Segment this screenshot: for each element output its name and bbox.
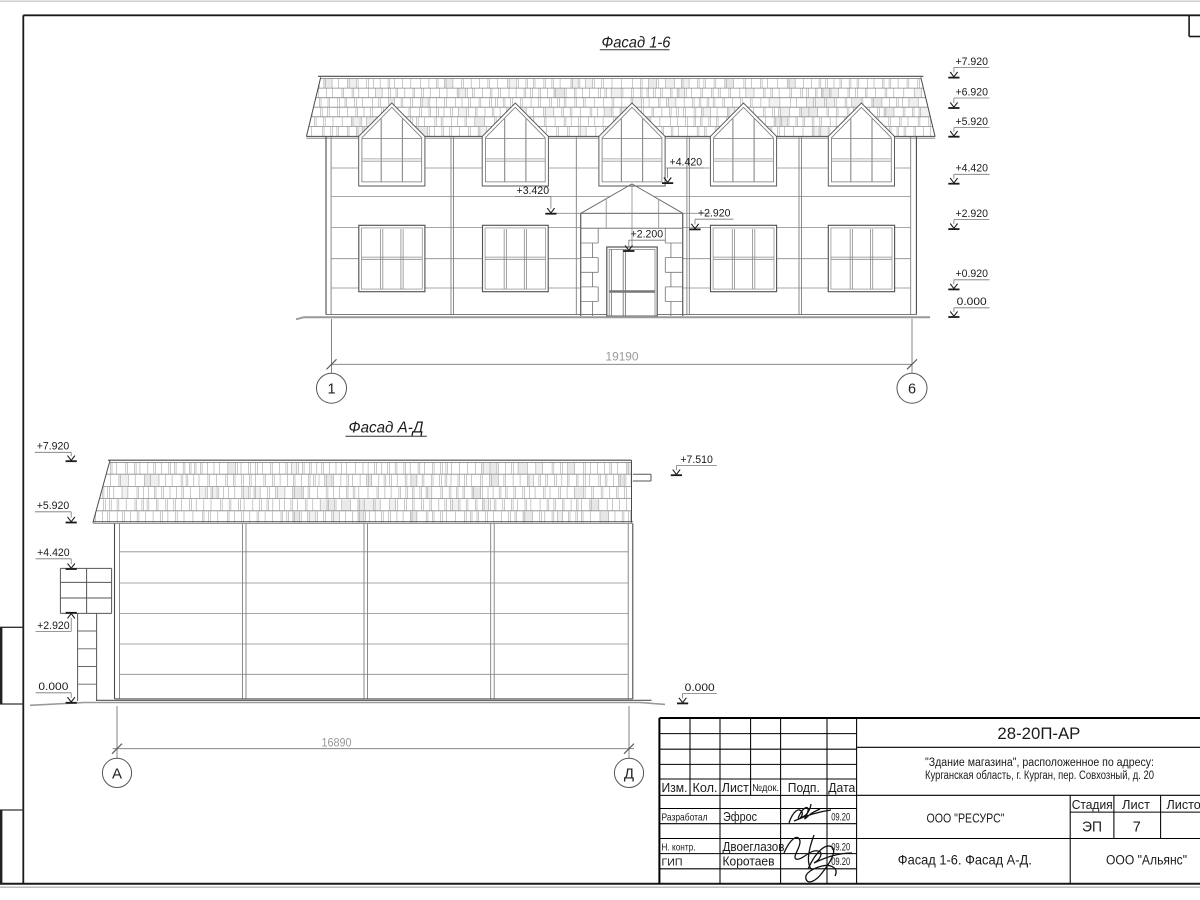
svg-text:Коротаев: Коротаев: [723, 854, 775, 869]
svg-text:Лист: Лист: [722, 780, 749, 795]
svg-text:Дата: Дата: [828, 780, 856, 795]
svg-text:0.000: 0.000: [38, 681, 68, 693]
svg-text:+2.920: +2.920: [698, 208, 731, 220]
svg-text:Эфрос: Эфрос: [723, 809, 758, 824]
svg-text:Фасад 1-6: Фасад 1-6: [602, 35, 671, 52]
svg-text:Фасад 1-6. Фасад А-Д.: Фасад 1-6. Фасад А-Д.: [898, 852, 1032, 868]
svg-text:+4.420: +4.420: [37, 547, 70, 559]
svg-text:Подп.: Подп.: [788, 780, 820, 795]
svg-text:Двоеглазов: Двоеглазов: [723, 839, 785, 854]
svg-text:Кол.: Кол.: [693, 780, 718, 795]
svg-text:ЭП: ЭП: [1082, 819, 1102, 835]
svg-text:Лист: Лист: [1122, 797, 1150, 812]
svg-text:+4.420: +4.420: [670, 156, 703, 168]
svg-text:1: 1: [327, 381, 335, 397]
svg-text:+7.510: +7.510: [680, 454, 713, 466]
svg-text:ООО "Альянс": ООО "Альянс": [1106, 853, 1187, 868]
svg-text:09.20: 09.20: [831, 812, 850, 824]
svg-text:Фасад А-Д: Фасад А-Д: [349, 419, 424, 436]
svg-text:Разработал: Разработал: [662, 812, 708, 824]
svg-text:+2.200: +2.200: [631, 229, 664, 241]
svg-text:0.000: 0.000: [957, 296, 987, 308]
svg-text:"Здание магазина", расположенн: "Здание магазина", расположенное по адре…: [925, 757, 1154, 769]
svg-text:Стадия: Стадия: [1072, 797, 1113, 812]
svg-text:+2.920: +2.920: [955, 208, 988, 220]
svg-text:+3.420: +3.420: [517, 185, 550, 197]
svg-text:А: А: [112, 765, 122, 782]
svg-text:0.000: 0.000: [685, 682, 715, 694]
svg-text:+4.420: +4.420: [955, 163, 988, 175]
svg-text:+5.920: +5.920: [37, 500, 70, 512]
svg-text:Д: Д: [624, 765, 634, 782]
svg-text:Листов: Листов: [1167, 797, 1200, 812]
svg-text:Курганская область, г. Курган,: Курганская область, г. Курган, пер. Совх…: [925, 770, 1154, 782]
svg-text:№док.: №док.: [752, 783, 779, 794]
svg-text:6: 6: [908, 381, 916, 397]
svg-text:+7.920: +7.920: [37, 441, 70, 453]
svg-text:+2.920: +2.920: [37, 620, 70, 632]
svg-text:28-20П-АР: 28-20П-АР: [997, 724, 1080, 743]
svg-text:Изм.: Изм.: [662, 780, 688, 795]
svg-text:+6.920: +6.920: [955, 86, 988, 98]
svg-text:ГИП: ГИП: [662, 857, 683, 868]
svg-text:+0.920: +0.920: [955, 268, 988, 280]
svg-text:ООО "РЕСУРС": ООО "РЕСУРС": [927, 811, 1005, 825]
svg-text:7: 7: [1133, 819, 1141, 835]
svg-text:09.20: 09.20: [831, 856, 850, 868]
svg-text:16890: 16890: [322, 737, 352, 749]
svg-text:19190: 19190: [606, 351, 639, 363]
svg-text:+7.920: +7.920: [955, 56, 988, 68]
svg-text:Н. контр.: Н. контр.: [662, 843, 696, 854]
svg-text:+5.920: +5.920: [955, 116, 988, 128]
